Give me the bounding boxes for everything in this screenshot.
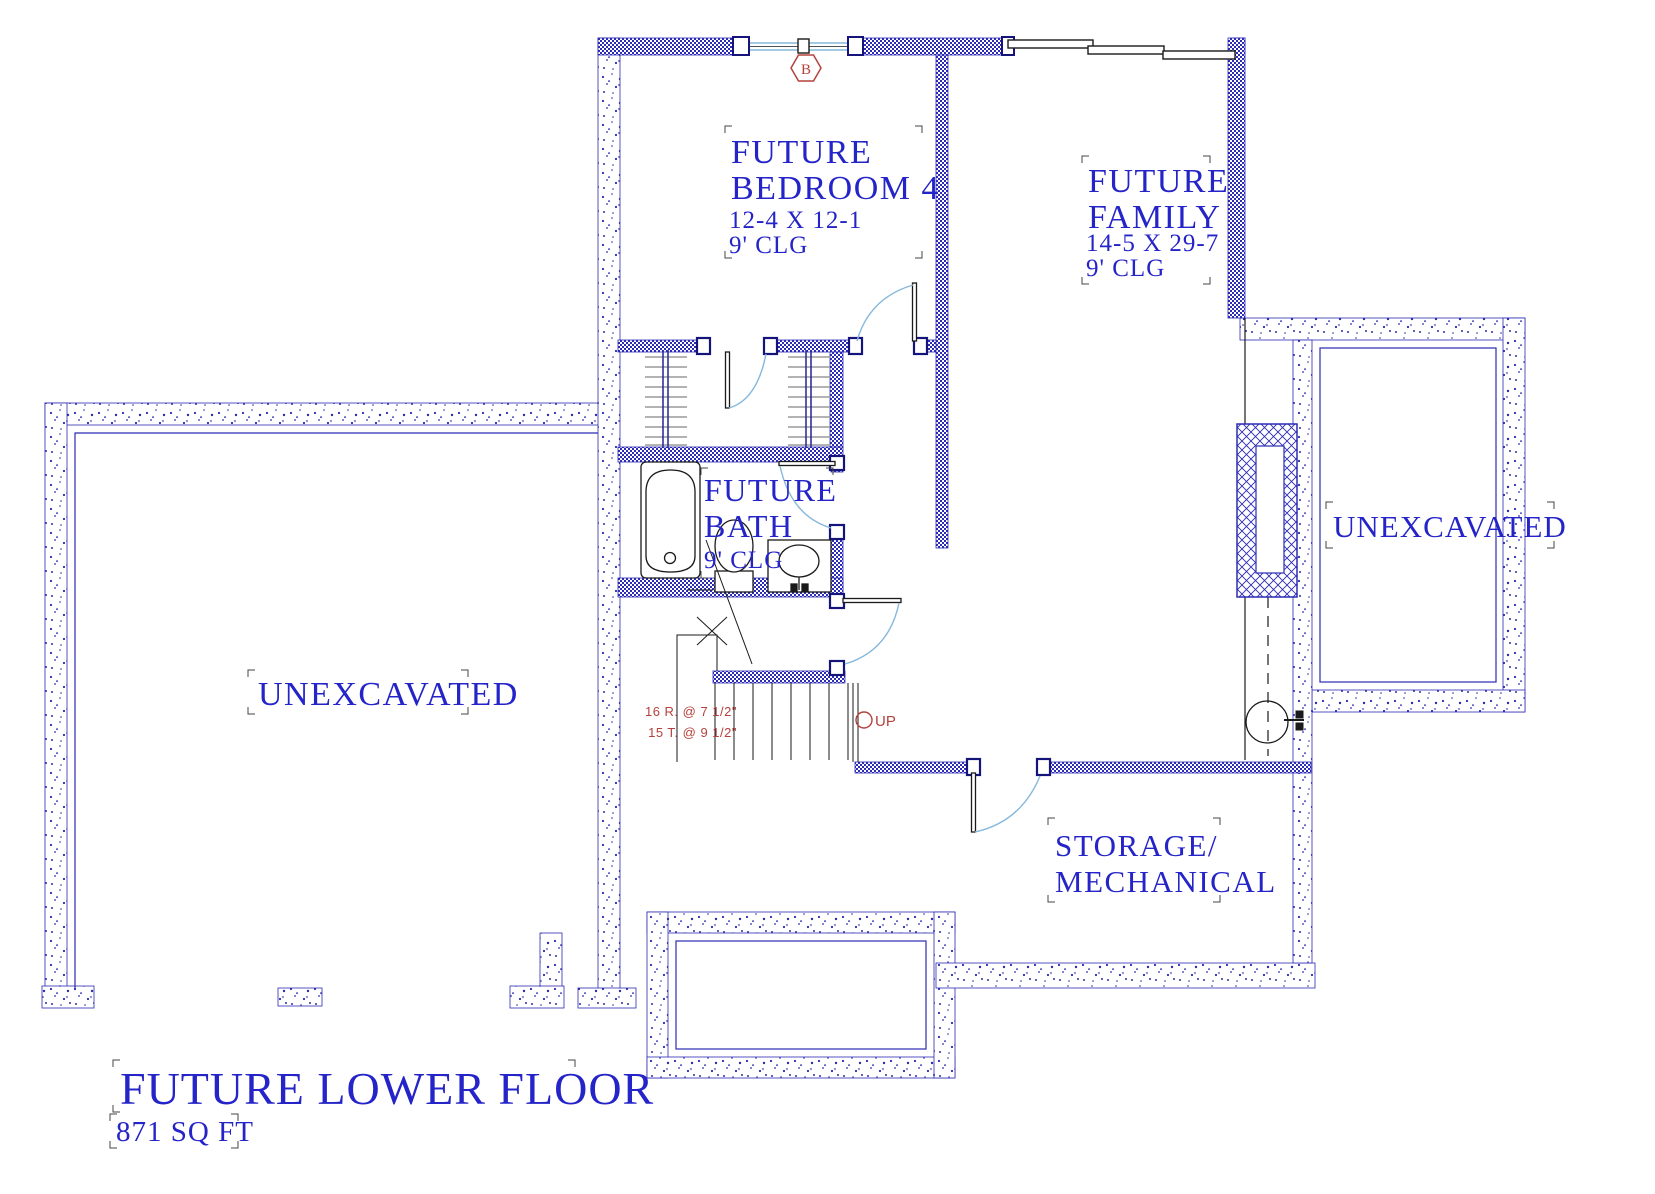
fireplace xyxy=(1237,424,1297,597)
plan-title: FUTURE LOWER FLOOR xyxy=(120,1063,654,1114)
closet-rod-right xyxy=(806,350,811,448)
sink-faucet-left xyxy=(791,584,797,591)
wall-bedroom-bottom-b xyxy=(777,340,851,352)
wall-stair-top xyxy=(713,671,845,683)
footing-stub-3 xyxy=(540,933,562,988)
toilet-tank xyxy=(715,571,753,592)
window-jamb-right xyxy=(848,37,863,55)
room-labels: FUTURE BEDROOM 4 12-4 X 12-1 9' CLG FUTU… xyxy=(258,134,1567,899)
bedroom-door-arc xyxy=(857,285,913,341)
stair-up-label: UP xyxy=(875,713,896,730)
stair-riser-note: 16 R. @ 7 1/2" xyxy=(645,704,737,719)
window-jamb-left xyxy=(733,37,749,55)
wall-top-b xyxy=(862,38,1008,55)
water-heater-valve-bottom xyxy=(1296,723,1303,730)
sliding-door xyxy=(1002,37,1235,59)
bath-ceiling: 9' CLG xyxy=(704,547,783,574)
wall-closet-bottom xyxy=(618,447,843,462)
family-name-line1: FUTURE xyxy=(1088,163,1229,200)
closet-door-jamb-left xyxy=(697,338,710,354)
storage-name-line2: MECHANICAL xyxy=(1055,864,1277,899)
footing-pad-main-left xyxy=(578,988,636,1008)
footing-pad-3 xyxy=(510,986,564,1008)
footing-pad-2 xyxy=(278,988,322,1006)
wall-family-right xyxy=(1228,38,1245,318)
room-label-bedroom4: FUTURE BEDROOM 4 12-4 X 12-1 9' CLG xyxy=(729,134,940,259)
wall-unexc-left-side xyxy=(45,403,67,990)
hall-door-jamb-top xyxy=(830,594,844,608)
window-tag-letter: B xyxy=(801,62,811,78)
wall-storage-divider-a xyxy=(855,762,967,773)
wall-storage-bottom xyxy=(936,963,1315,988)
bedroom4-ceiling: 9' CLG xyxy=(729,232,808,259)
unexcavated-left-label: UNEXCAVATED xyxy=(258,676,519,713)
closet-shelving xyxy=(645,350,830,448)
bath-name-line1: FUTURE xyxy=(704,472,837,508)
water-heater-tank xyxy=(1246,701,1288,743)
label-corner-ticks xyxy=(110,126,1554,1148)
storage-door-arc xyxy=(975,776,1040,832)
wall-unexc-right-top xyxy=(1240,318,1525,340)
wall-porch-bottom xyxy=(647,1057,955,1078)
framed-walls xyxy=(598,38,1311,773)
bath-door-jamb-bottom xyxy=(830,525,844,539)
hall-door-jamb-bottom xyxy=(830,661,844,675)
closet-rod-left xyxy=(663,350,668,448)
wall-top-a xyxy=(598,38,733,55)
wall-main-left xyxy=(598,38,620,990)
wall-bedroom-bottom-a xyxy=(618,340,697,352)
bedroom4-name-line1: FUTURE xyxy=(731,134,872,171)
wall-porch-left xyxy=(647,912,668,1078)
storage-door-jamb-right xyxy=(1037,759,1050,775)
closet-shelves-right xyxy=(788,357,830,445)
stair-landing-outline xyxy=(677,635,717,762)
wall-porch-top xyxy=(647,912,955,933)
room-label-family: FUTURE FAMILY 14-5 X 29-7 9' CLG xyxy=(1086,163,1229,282)
closet-door-arc xyxy=(729,354,766,408)
bathtub-drain xyxy=(665,553,676,564)
bedroom-door-jamb-left xyxy=(849,338,862,354)
wall-unexc-left-top xyxy=(45,403,618,425)
slider-panel-3 xyxy=(1163,51,1235,59)
fireplace-flue-slot xyxy=(1256,446,1284,573)
bathtub xyxy=(641,462,700,578)
bedroom4-name-line2: BEDROOM 4 xyxy=(731,170,940,207)
wall-bedroom-family xyxy=(936,55,948,548)
floor-plan-drawing: B xyxy=(0,0,1655,1194)
room-label-storage: STORAGE/ MECHANICAL xyxy=(1055,828,1277,899)
bedroom-door-leaf xyxy=(913,283,917,341)
storage-name-line1: STORAGE/ xyxy=(1055,828,1218,863)
floor-plan-sheet: B xyxy=(0,0,1655,1194)
sink-basin xyxy=(779,545,819,577)
hall-door-arc xyxy=(845,603,899,664)
wall-unexc-right-bottom xyxy=(1312,690,1525,712)
hall-door-leaf xyxy=(843,599,901,603)
family-ceiling: 9' CLG xyxy=(1086,255,1165,282)
closet-door-leaf xyxy=(726,352,730,408)
wall-storage-divider-b xyxy=(1050,762,1311,773)
window-mullion xyxy=(798,39,809,53)
porch-inner-line xyxy=(676,941,926,1049)
closet-shelves-left xyxy=(645,357,687,445)
water-heater-valve-top xyxy=(1296,711,1303,718)
plan-area: 871 SQ FT xyxy=(116,1116,254,1148)
slider-panel-2 xyxy=(1088,46,1164,54)
family-dims: 14-5 X 29-7 xyxy=(1086,230,1219,257)
bath-name-line2: BATH xyxy=(704,508,794,544)
bedroom-window xyxy=(733,37,863,55)
wall-porch-right xyxy=(934,912,955,1078)
closet-door-jamb-right xyxy=(764,338,777,354)
storage-door-leaf xyxy=(972,773,976,832)
bedroom4-dims: 12-4 X 12-1 xyxy=(729,207,862,234)
bath-door-leaf xyxy=(779,462,835,466)
wall-hall-left xyxy=(830,352,843,447)
wall-bedroom-bottom-c xyxy=(927,340,936,352)
footing-pad-1 xyxy=(42,986,94,1008)
slider-panel-1 xyxy=(1008,40,1093,48)
window-tag: B xyxy=(791,55,821,81)
unexcavated-right-label: UNEXCAVATED xyxy=(1333,509,1567,544)
stair-tread-note: 15 T. @ 9 1/2" xyxy=(648,725,737,740)
sink-faucet-right xyxy=(802,584,808,591)
title-block: FUTURE LOWER FLOOR 871 SQ FT xyxy=(116,1063,654,1148)
